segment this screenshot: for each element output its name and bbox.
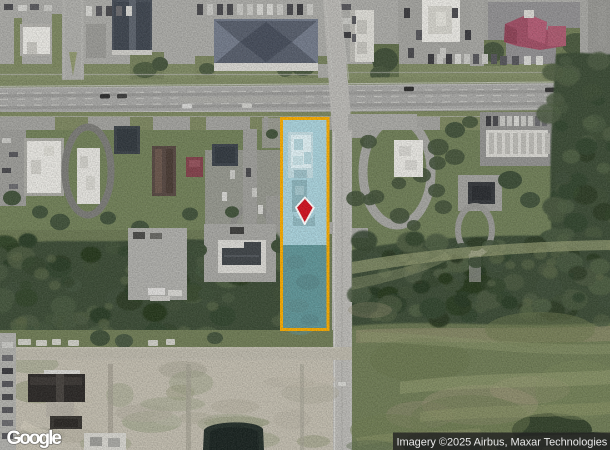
svg-text:Google: Google (7, 428, 62, 449)
svg-text:Imagery ©2025 Airbus, Maxar Te: Imagery ©2025 Airbus, Maxar Technologies (397, 437, 608, 449)
